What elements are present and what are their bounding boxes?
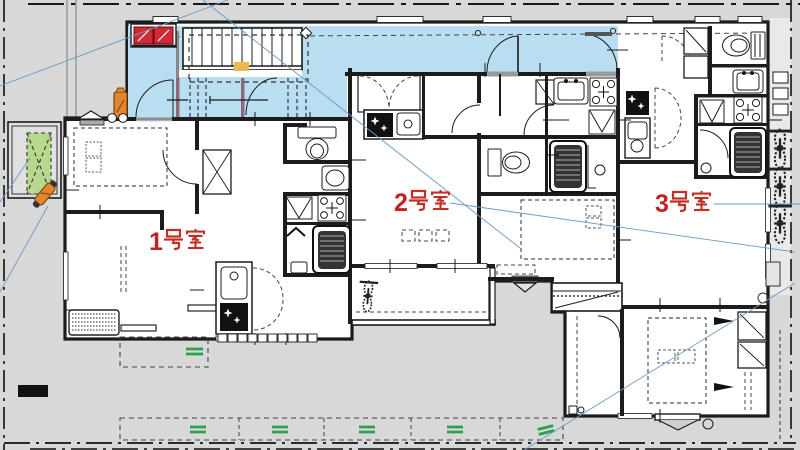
svg-text:1: 1 — [149, 228, 163, 256]
svg-text:2: 2 — [394, 189, 408, 217]
svg-text:3: 3 — [655, 190, 669, 218]
